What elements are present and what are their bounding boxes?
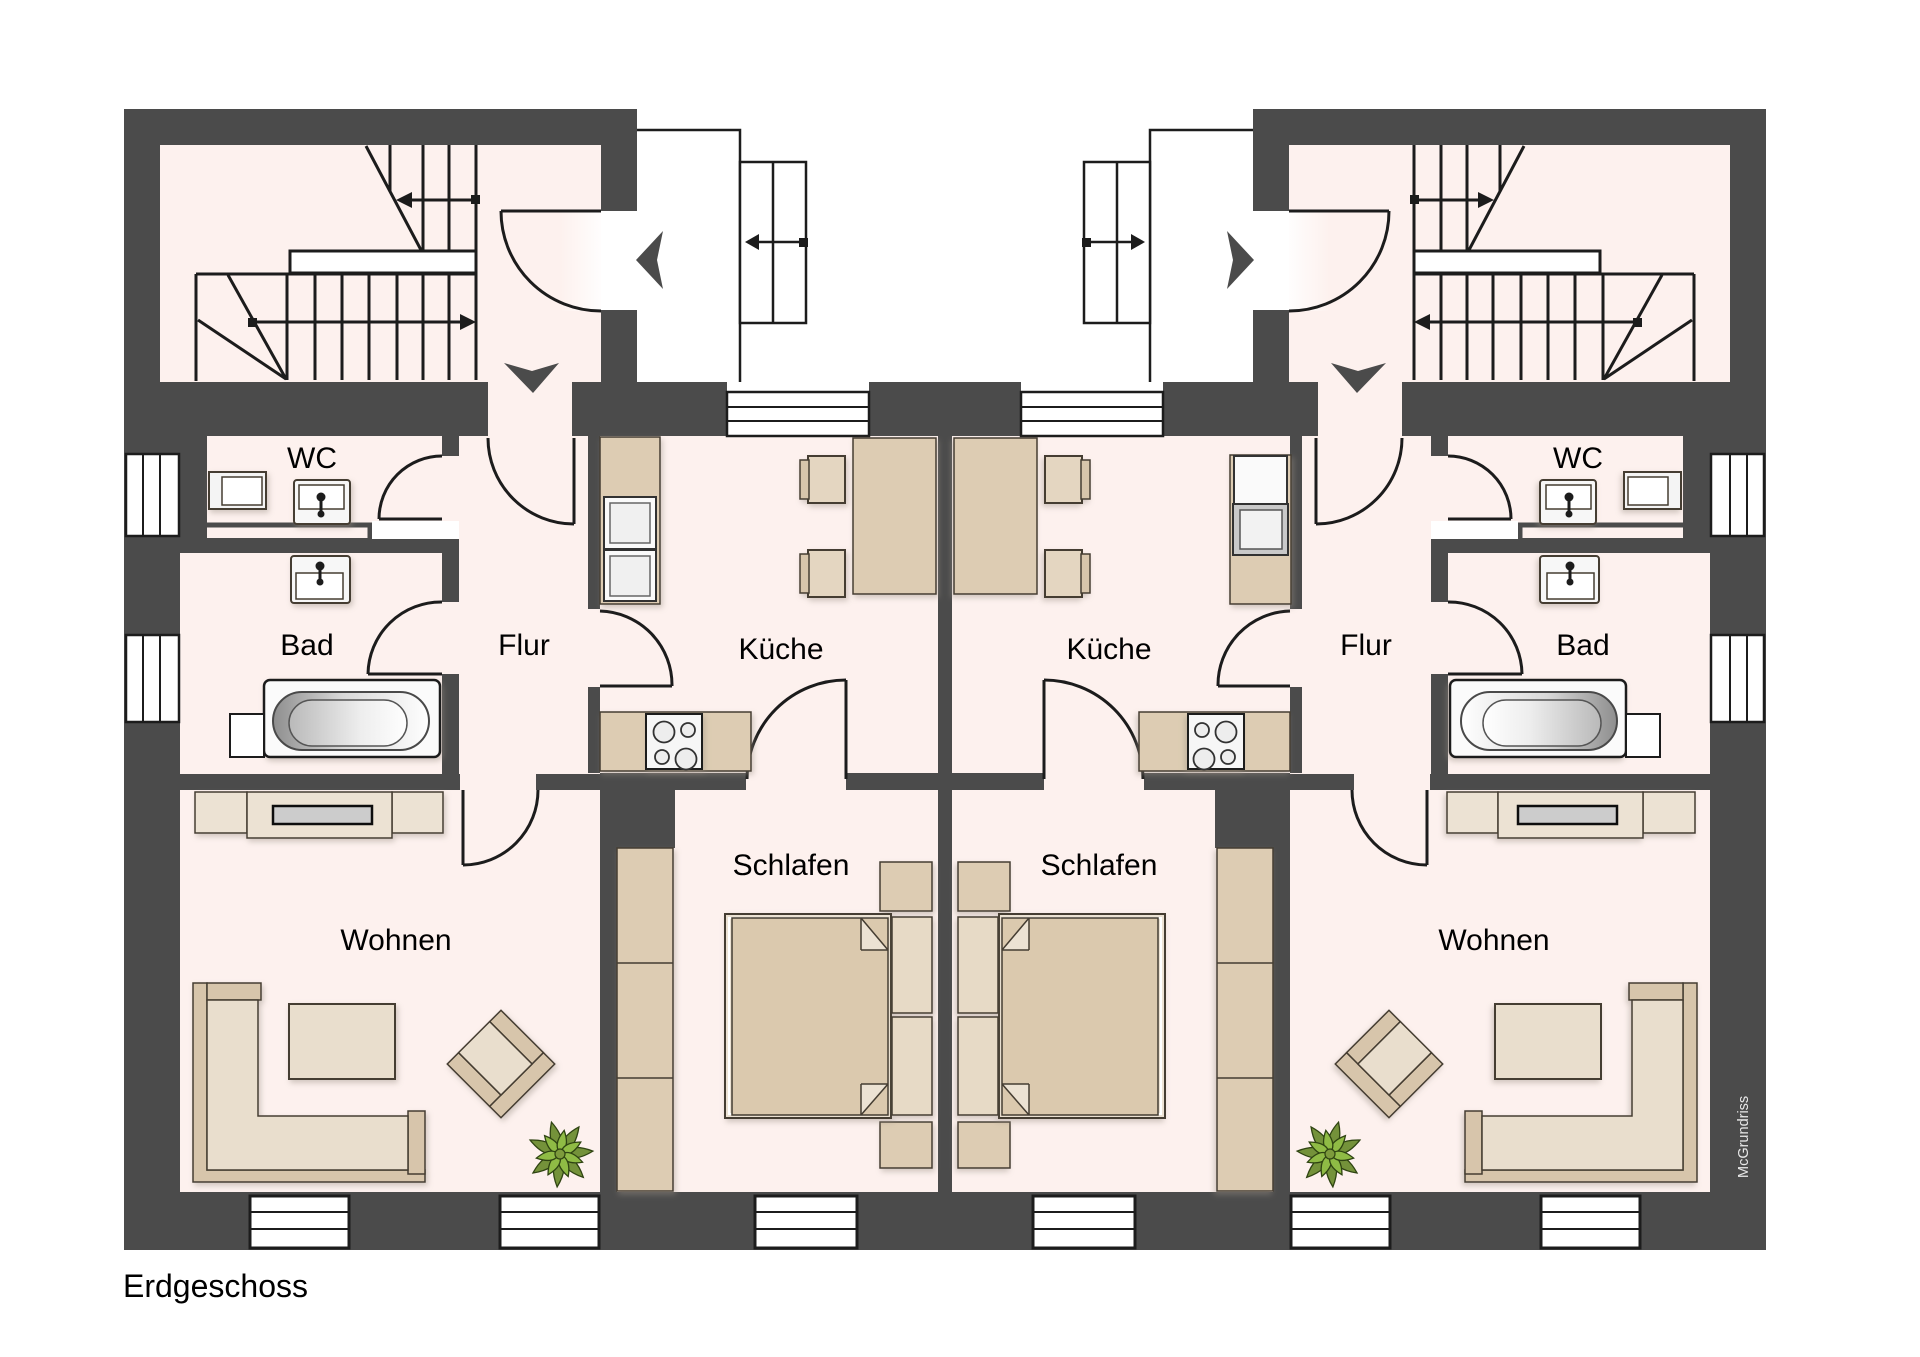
svg-text:McGrundriss: McGrundriss (1736, 1096, 1752, 1178)
svg-text:Wohnen: Wohnen (1438, 924, 1549, 957)
svg-text:Bad: Bad (280, 629, 333, 662)
svg-text:Küche: Küche (738, 633, 823, 666)
svg-text:Wohnen: Wohnen (340, 924, 451, 957)
svg-text:WC: WC (1553, 442, 1603, 475)
svg-text:Erdgeschoss: Erdgeschoss (123, 1268, 308, 1304)
svg-text:Schlafen: Schlafen (733, 849, 850, 882)
svg-text:Schlafen: Schlafen (1041, 849, 1158, 882)
svg-text:Flur: Flur (1340, 629, 1392, 662)
svg-text:WC: WC (287, 442, 337, 475)
svg-text:Flur: Flur (498, 629, 550, 662)
svg-text:Bad: Bad (1556, 629, 1609, 662)
svg-text:Küche: Küche (1066, 633, 1151, 666)
